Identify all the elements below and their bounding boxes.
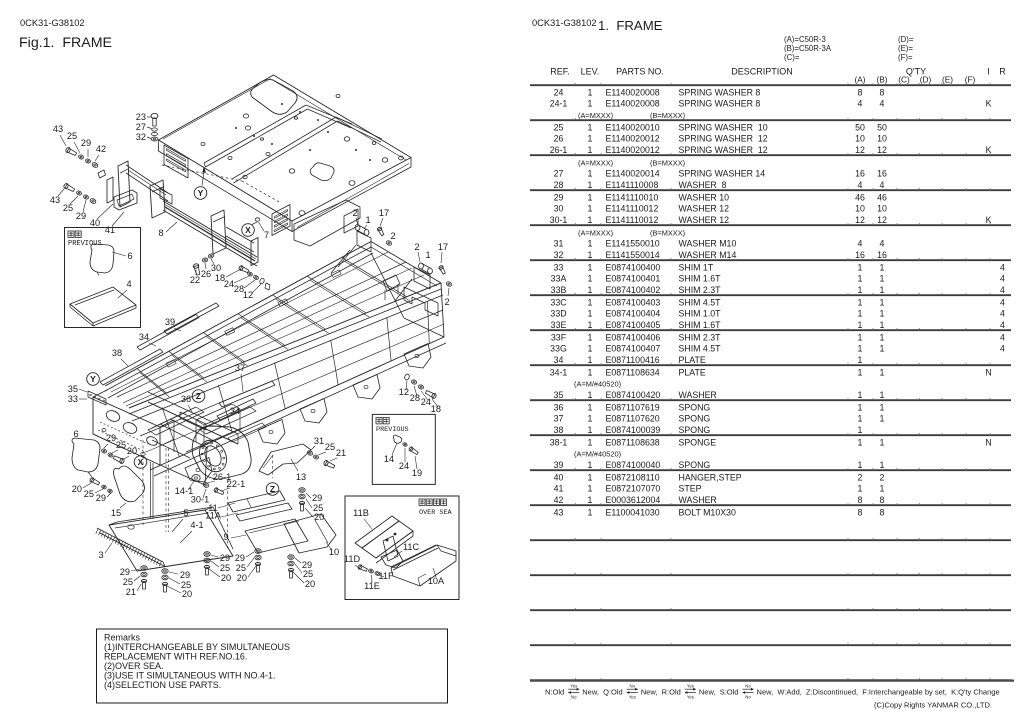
svg-text:33A: 33A (551, 274, 567, 284)
svg-text:19: 19 (412, 468, 422, 478)
svg-text:24: 24 (224, 279, 234, 289)
svg-text:1: 1 (880, 262, 885, 272)
svg-text:1: 1 (588, 437, 593, 447)
svg-text:33B: 33B (551, 285, 567, 295)
svg-text:20: 20 (72, 484, 82, 494)
svg-text:12: 12 (399, 387, 409, 397)
svg-text:30: 30 (211, 263, 221, 273)
svg-text:1: 1 (880, 274, 885, 284)
svg-text:E0871100416: E0871100416 (606, 355, 660, 365)
svg-text:25: 25 (123, 577, 133, 587)
svg-text:25: 25 (236, 563, 246, 573)
svg-text:PLATE: PLATE (679, 367, 706, 377)
svg-text:34: 34 (230, 406, 240, 416)
svg-text:X: X (245, 225, 251, 235)
svg-text:25: 25 (67, 131, 77, 141)
svg-text:30-1: 30-1 (191, 495, 209, 505)
svg-text:SPONGE: SPONGE (679, 437, 717, 447)
svg-text:34-1: 34-1 (550, 367, 568, 377)
svg-text:29: 29 (120, 567, 130, 577)
svg-text:14: 14 (384, 454, 394, 464)
svg-text:E0872108110: E0872108110 (606, 472, 660, 482)
svg-text:2: 2 (352, 208, 357, 218)
svg-text:WASHER: WASHER (679, 495, 717, 505)
svg-text:DESCRIPTION: DESCRIPTION (731, 66, 793, 76)
svg-text:26: 26 (554, 134, 564, 144)
svg-text:1: 1 (588, 507, 593, 517)
svg-text:26-1: 26-1 (550, 145, 568, 155)
svg-text:WASHER 8: WASHER 8 (679, 180, 727, 190)
svg-text:1: 1 (880, 402, 885, 412)
svg-text:K: K (986, 145, 992, 155)
svg-text:43: 43 (50, 195, 60, 205)
svg-text:E1140020012: E1140020012 (606, 134, 660, 144)
svg-text:8: 8 (880, 495, 885, 505)
svg-text:E1141110008: E1141110008 (606, 180, 659, 190)
svg-text:Fig.1. FRAME: Fig.1. FRAME (19, 35, 112, 51)
svg-text:12: 12 (243, 290, 253, 300)
svg-text:E0874100405: E0874100405 (606, 320, 661, 330)
svg-text:4: 4 (126, 279, 131, 289)
svg-text:(B=MXXX): (B=MXXX) (650, 158, 685, 167)
svg-text:1: 1 (880, 297, 885, 307)
svg-text:N: N (985, 367, 991, 377)
svg-text:2: 2 (444, 297, 449, 307)
svg-text:(B=MXXX): (B=MXXX) (650, 111, 685, 120)
svg-text:1: 1 (588, 134, 593, 144)
svg-text:E0874100407: E0874100407 (606, 344, 661, 354)
svg-text:N:Old: N:Old (545, 687, 564, 696)
svg-text:22: 22 (190, 275, 200, 285)
svg-text:E0871107620: E0871107620 (606, 414, 660, 424)
svg-text:Yes: Yes (629, 694, 636, 699)
svg-text:1: 1 (588, 344, 593, 354)
svg-text:10: 10 (855, 204, 865, 214)
svg-text:24: 24 (399, 461, 409, 471)
svg-text:WASHER M14: WASHER M14 (679, 250, 737, 260)
svg-text:SHIM 1.0T: SHIM 1.0T (679, 309, 722, 319)
svg-text:20: 20 (127, 446, 137, 456)
svg-text:1: 1 (588, 495, 593, 505)
svg-text:29: 29 (220, 553, 230, 563)
svg-text:(F)=: (F)= (898, 53, 913, 62)
svg-text:32: 32 (554, 250, 564, 260)
svg-text:Remarks: Remarks (104, 633, 141, 643)
svg-text:25: 25 (303, 569, 313, 579)
svg-text:24-1: 24-1 (550, 99, 568, 109)
svg-text:37: 37 (554, 414, 564, 424)
svg-text:0CK31-G38102: 0CK31-G38102 (532, 18, 597, 28)
svg-text:1: 1 (858, 332, 863, 342)
svg-text:2: 2 (414, 242, 419, 252)
svg-text:43: 43 (53, 124, 63, 134)
svg-text:24: 24 (554, 87, 564, 97)
svg-text:(C)Copy Rights YANMAR CO.,LTD.: (C)Copy Rights YANMAR CO.,LTD. (874, 701, 992, 710)
svg-text:SPONG: SPONG (679, 425, 711, 435)
svg-text:12: 12 (877, 215, 887, 225)
svg-text:33C: 33C (550, 297, 567, 307)
svg-text:(4)SELECTION USE PARTS.: (4)SELECTION USE PARTS. (104, 680, 221, 690)
svg-text:35: 35 (68, 384, 78, 394)
svg-text:(A=M/#40520): (A=M/#40520) (574, 380, 621, 389)
svg-text:1: 1 (858, 309, 863, 319)
svg-text:8: 8 (880, 507, 885, 517)
svg-text:1. FRAME: 1. FRAME (598, 18, 663, 33)
svg-text:10: 10 (877, 134, 887, 144)
svg-text:11F: 11F (378, 571, 394, 581)
svg-text:1: 1 (588, 215, 593, 225)
svg-text:SHIM 2.3T: SHIM 2.3T (679, 332, 722, 342)
svg-text:36: 36 (181, 394, 191, 404)
svg-text:(B): (B) (876, 75, 887, 85)
svg-text:SPONG: SPONG (679, 460, 711, 470)
svg-text:1: 1 (880, 285, 885, 295)
svg-text:8: 8 (880, 87, 885, 97)
svg-text:1: 1 (588, 274, 593, 284)
svg-text:SPRING WASHER 8: SPRING WASHER 8 (679, 99, 761, 109)
svg-text:LEV.: LEV. (581, 66, 600, 76)
svg-text:1: 1 (588, 250, 593, 260)
svg-text:1: 1 (858, 367, 863, 377)
svg-text:17: 17 (379, 208, 389, 218)
svg-text:1: 1 (588, 320, 593, 330)
svg-text:WASHER M10: WASHER M10 (679, 239, 737, 249)
svg-text:1: 1 (588, 192, 593, 202)
svg-text:6: 6 (127, 251, 132, 261)
svg-text:SHIM 1T: SHIM 1T (679, 262, 714, 272)
svg-text:1: 1 (858, 402, 863, 412)
svg-text:1: 1 (588, 169, 593, 179)
svg-text:1: 1 (880, 390, 885, 400)
svg-text:1: 1 (880, 309, 885, 319)
svg-text:(E)=: (E)= (898, 44, 913, 53)
svg-text:2: 2 (858, 472, 863, 482)
svg-text:E1140020008: E1140020008 (606, 87, 660, 97)
svg-text:29: 29 (235, 553, 245, 563)
svg-text:2: 2 (390, 231, 395, 241)
svg-text:BOLT M10X30: BOLT M10X30 (679, 507, 736, 517)
svg-text:1: 1 (365, 215, 370, 225)
svg-text:4: 4 (1000, 320, 1005, 330)
svg-text:8: 8 (858, 495, 863, 505)
svg-text:1: 1 (880, 484, 885, 494)
svg-text:E0874100040: E0874100040 (606, 460, 661, 470)
svg-text:4: 4 (1000, 274, 1005, 284)
svg-text:34: 34 (139, 332, 149, 342)
svg-text:12: 12 (877, 145, 887, 155)
svg-text:6: 6 (73, 429, 78, 439)
svg-text:23: 23 (136, 112, 146, 122)
svg-text:1: 1 (858, 425, 863, 435)
svg-text:I: I (987, 66, 990, 76)
svg-text:E1141550014: E1141550014 (606, 250, 660, 260)
svg-text:20: 20 (221, 573, 231, 583)
svg-text:1: 1 (588, 472, 593, 482)
svg-text:SPRING WASHER 12: SPRING WASHER 12 (679, 134, 768, 144)
svg-text:SPONG: SPONG (679, 414, 711, 424)
svg-text:5: 5 (183, 508, 188, 518)
svg-text:21: 21 (336, 448, 346, 458)
svg-text:0CK31-G38102: 0CK31-G38102 (20, 18, 85, 28)
svg-text:24: 24 (421, 397, 431, 407)
svg-text:38: 38 (112, 348, 122, 358)
svg-text:E1140020010: E1140020010 (606, 122, 660, 132)
svg-text:28: 28 (554, 180, 564, 190)
svg-text:(D)=: (D)= (898, 35, 914, 44)
svg-text:39: 39 (554, 460, 564, 470)
svg-text:E1140020008: E1140020008 (606, 99, 660, 109)
svg-text:22-1: 22-1 (227, 479, 245, 489)
svg-text:4: 4 (880, 99, 885, 109)
svg-text:42: 42 (96, 144, 106, 154)
svg-text:1: 1 (588, 425, 593, 435)
svg-text:HANGER,STEP: HANGER,STEP (679, 472, 742, 482)
svg-text:16: 16 (877, 169, 887, 179)
svg-text:E1141110012: E1141110012 (606, 215, 659, 225)
svg-text:1: 1 (880, 437, 885, 447)
svg-text:E0874100039: E0874100039 (606, 425, 661, 435)
svg-text:E1140020014: E1140020014 (606, 169, 660, 179)
svg-text:40: 40 (554, 472, 564, 482)
svg-text:11C: 11C (403, 542, 420, 552)
svg-text:1: 1 (588, 484, 593, 494)
svg-text:29: 29 (554, 192, 564, 202)
svg-text:33: 33 (68, 394, 78, 404)
svg-text:4: 4 (880, 239, 885, 249)
svg-text:4: 4 (1000, 262, 1005, 272)
svg-text:16: 16 (855, 169, 865, 179)
svg-text:18: 18 (431, 404, 441, 414)
svg-text:4: 4 (1000, 285, 1005, 295)
svg-text:(A=MXXX): (A=MXXX) (578, 111, 613, 120)
svg-text:SHIM 1.6T: SHIM 1.6T (679, 320, 722, 330)
svg-text:35: 35 (554, 390, 564, 400)
svg-text:10: 10 (855, 134, 865, 144)
svg-text:STEP: STEP (679, 484, 702, 494)
svg-text:1: 1 (858, 414, 863, 424)
svg-text:1: 1 (588, 390, 593, 400)
svg-text:1: 1 (858, 262, 863, 272)
svg-text:43: 43 (554, 507, 564, 517)
svg-text:No: No (630, 684, 636, 689)
svg-text:WASHER 10: WASHER 10 (679, 192, 730, 202)
svg-text:1: 1 (880, 414, 885, 424)
svg-text:13: 13 (296, 472, 306, 482)
svg-text:N: N (985, 437, 991, 447)
svg-text:E0871107619: E0871107619 (606, 402, 660, 412)
svg-text:PREVIOUS: PREVIOUS (376, 426, 409, 434)
svg-text:(C)=: (C)= (784, 53, 800, 62)
svg-text:SPRING WASHER 12: SPRING WASHER 12 (679, 145, 768, 155)
svg-text:PARTS NO.: PARTS NO. (616, 66, 664, 76)
svg-text:E0874100406: E0874100406 (606, 332, 661, 342)
svg-text:20: 20 (305, 579, 315, 589)
svg-text:SHIM 4.5T: SHIM 4.5T (679, 344, 722, 354)
svg-text:46: 46 (877, 192, 887, 202)
svg-text:SHIM 1.6T: SHIM 1.6T (679, 274, 722, 284)
svg-text:1: 1 (858, 297, 863, 307)
svg-text:26: 26 (201, 269, 211, 279)
svg-text:1: 1 (588, 145, 593, 155)
svg-text:29: 29 (96, 493, 106, 503)
svg-text:E1141550010: E1141550010 (606, 239, 660, 249)
svg-text:31: 31 (554, 239, 564, 249)
svg-text:1: 1 (588, 180, 593, 190)
svg-text:4: 4 (880, 180, 885, 190)
svg-text:Yes: Yes (687, 694, 694, 699)
svg-text:Z: Z (270, 484, 275, 494)
svg-text:20: 20 (237, 573, 247, 583)
svg-text:Y: Y (90, 374, 96, 384)
svg-text:1: 1 (858, 460, 863, 470)
svg-text:1: 1 (588, 297, 593, 307)
svg-text:1: 1 (880, 367, 885, 377)
svg-text:Yes: Yes (570, 684, 577, 689)
svg-text:1: 1 (588, 122, 593, 132)
svg-text:SHIM 2.3T: SHIM 2.3T (679, 285, 722, 295)
svg-text:15: 15 (111, 508, 121, 518)
svg-text:1: 1 (880, 320, 885, 330)
svg-text:No: No (571, 694, 577, 699)
svg-text:SPRING WASHER 10: SPRING WASHER 10 (679, 122, 768, 132)
svg-text:(A=MXXX): (A=MXXX) (578, 228, 613, 237)
svg-text:50: 50 (877, 122, 887, 132)
svg-text:38-1: 38-1 (550, 437, 568, 447)
svg-text:29: 29 (76, 211, 86, 221)
svg-text:(A=M/#40520): (A=M/#40520) (574, 450, 621, 459)
svg-text:E0874100400: E0874100400 (606, 262, 661, 272)
svg-text:1: 1 (880, 344, 885, 354)
svg-text:1: 1 (880, 460, 885, 470)
svg-text:33D: 33D (550, 309, 566, 319)
svg-text:SPONG: SPONG (679, 402, 711, 412)
svg-text:E0874100403: E0874100403 (606, 297, 661, 307)
svg-text:(B)=C50R-3A: (B)=C50R-3A (784, 44, 832, 53)
svg-text:E0874100401: E0874100401 (606, 274, 661, 284)
svg-text:SPRING WASHER 14: SPRING WASHER 14 (679, 169, 766, 179)
svg-text:New, R:Old: New, R:Old (641, 687, 681, 696)
svg-text:1: 1 (880, 332, 885, 342)
svg-text:(B=MXXX): (B=MXXX) (650, 228, 685, 237)
svg-text:30-1: 30-1 (550, 215, 568, 225)
svg-text:8: 8 (158, 228, 163, 238)
svg-text:OVER SEA: OVER SEA (419, 509, 453, 517)
svg-text:4-1: 4-1 (190, 520, 203, 530)
svg-text:25: 25 (325, 442, 335, 452)
svg-text:33E: 33E (551, 320, 567, 330)
svg-text:E1141110010: E1141110010 (606, 192, 659, 202)
svg-text:SHIM 4.5T: SHIM 4.5T (679, 297, 722, 307)
svg-text:1: 1 (588, 239, 593, 249)
svg-text:36: 36 (554, 402, 564, 412)
svg-text:E0003612004: E0003612004 (606, 495, 661, 505)
svg-text:20: 20 (314, 512, 324, 522)
svg-text:(A): (A) (854, 75, 865, 85)
svg-text:1: 1 (588, 87, 593, 97)
svg-text:17: 17 (438, 242, 448, 252)
svg-text:1: 1 (588, 414, 593, 424)
svg-text:E1100041030: E1100041030 (606, 507, 660, 517)
svg-text:PLATE: PLATE (679, 355, 706, 365)
svg-text:10A: 10A (428, 576, 445, 586)
svg-text:1: 1 (588, 355, 593, 365)
svg-text:11B: 11B (353, 508, 369, 518)
svg-text:34: 34 (554, 355, 564, 365)
svg-text:1: 1 (588, 332, 593, 342)
svg-text:1: 1 (858, 320, 863, 330)
svg-text:32: 32 (136, 132, 146, 142)
svg-text:31: 31 (314, 436, 324, 446)
svg-text:1: 1 (588, 402, 593, 412)
svg-text:12: 12 (855, 215, 865, 225)
svg-text:33F: 33F (551, 332, 567, 342)
svg-text:(E): (E) (942, 75, 953, 85)
svg-text:E1140020012: E1140020012 (606, 145, 660, 155)
svg-text:9: 9 (223, 532, 228, 542)
svg-text:No: No (745, 694, 751, 699)
svg-text:12: 12 (855, 145, 865, 155)
svg-text:E1141110012: E1141110012 (606, 204, 659, 214)
svg-text:(1)INTERCHANGEABLE BY SIMULTAN: (1)INTERCHANGEABLE BY SIMULTANEOUS (104, 642, 290, 652)
svg-text:Z: Z (196, 391, 201, 401)
svg-text:E0874100402: E0874100402 (606, 285, 661, 295)
svg-text:16: 16 (855, 250, 865, 260)
svg-text:40: 40 (90, 218, 100, 228)
svg-text:10: 10 (877, 204, 887, 214)
svg-text:1: 1 (588, 367, 593, 377)
svg-text:25: 25 (84, 489, 94, 499)
svg-text:1: 1 (588, 460, 593, 470)
svg-text:(A=MXXX): (A=MXXX) (578, 158, 613, 167)
svg-text:WASHER 12: WASHER 12 (679, 204, 730, 214)
svg-text:Y: Y (198, 188, 204, 198)
svg-text:29: 29 (180, 570, 190, 580)
svg-text:E0872107070: E0872107070 (606, 484, 661, 494)
svg-text:50: 50 (855, 122, 865, 132)
svg-text:21: 21 (126, 587, 136, 597)
svg-text:4: 4 (1000, 297, 1005, 307)
svg-text:1: 1 (588, 285, 593, 295)
svg-text:29: 29 (106, 433, 116, 443)
svg-text:46: 46 (855, 192, 865, 202)
svg-text:37: 37 (235, 363, 245, 373)
svg-text:16: 16 (877, 250, 887, 260)
svg-text:New, Q:Old: New, Q:Old (582, 687, 622, 696)
svg-text:1: 1 (858, 285, 863, 295)
svg-text:E0874100420: E0874100420 (606, 390, 661, 400)
svg-text:29: 29 (312, 493, 322, 503)
svg-text:1: 1 (858, 274, 863, 284)
svg-text:E0874100404: E0874100404 (606, 309, 661, 319)
svg-text:1: 1 (588, 99, 593, 109)
svg-text:29: 29 (81, 138, 91, 148)
svg-text:41: 41 (554, 484, 564, 494)
svg-text:Yes: Yes (687, 684, 694, 689)
svg-text:1: 1 (588, 204, 593, 214)
svg-text:WASHER: WASHER (679, 390, 717, 400)
svg-text:(2)OVER SEA.: (2)OVER SEA. (104, 661, 164, 671)
svg-text:K: K (986, 215, 992, 225)
svg-text:33: 33 (554, 262, 564, 272)
svg-text:4: 4 (858, 99, 863, 109)
svg-text:E0871108634: E0871108634 (606, 367, 660, 377)
svg-text:8: 8 (858, 507, 863, 517)
svg-text:3: 3 (98, 550, 103, 560)
svg-text:11A: 11A (205, 511, 222, 521)
svg-text:25: 25 (554, 122, 564, 132)
svg-text:8: 8 (858, 87, 863, 97)
svg-text:4: 4 (1000, 309, 1005, 319)
